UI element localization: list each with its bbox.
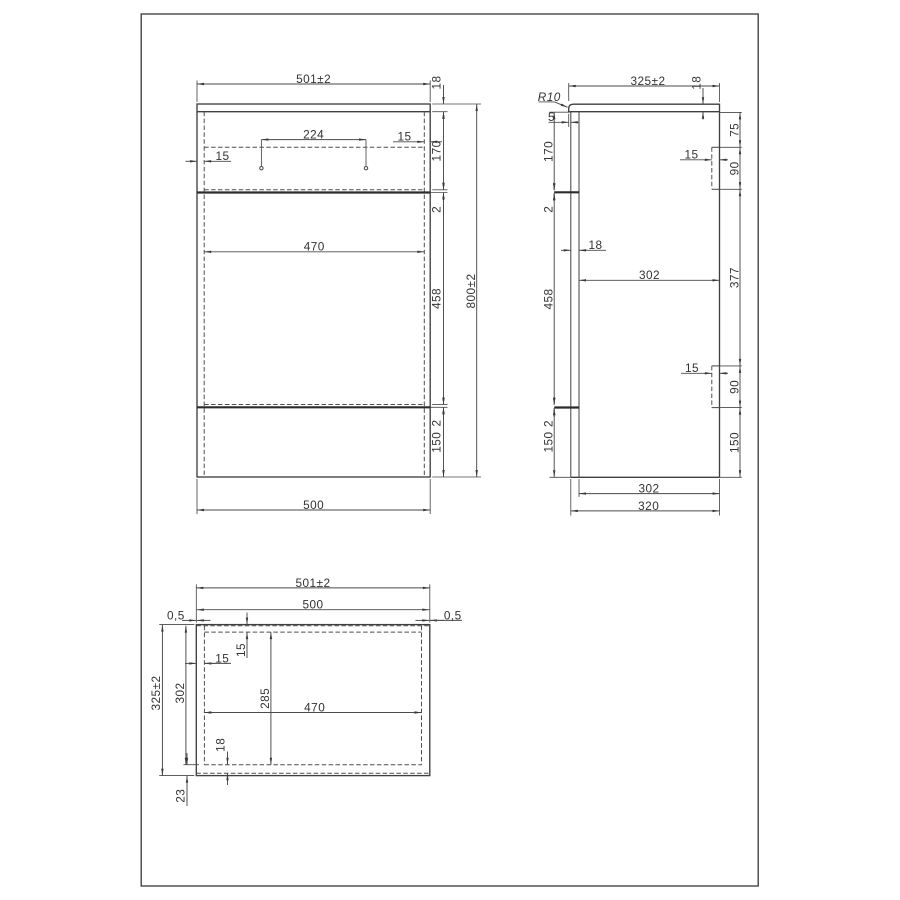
svg-text:18: 18 [430, 75, 444, 89]
svg-text:2: 2 [542, 420, 556, 427]
svg-text:15: 15 [684, 148, 698, 162]
svg-text:15: 15 [234, 643, 248, 657]
svg-text:18: 18 [588, 238, 602, 252]
svg-text:302: 302 [638, 482, 659, 496]
svg-text:2: 2 [542, 206, 556, 213]
svg-text:500: 500 [303, 498, 324, 512]
svg-text:150: 150 [430, 432, 444, 453]
svg-text:470: 470 [304, 240, 325, 254]
svg-text:302: 302 [173, 682, 187, 703]
svg-text:18: 18 [213, 738, 227, 752]
svg-text:75: 75 [727, 123, 741, 137]
svg-text:15: 15 [215, 651, 229, 665]
svg-text:377: 377 [727, 267, 741, 288]
svg-text:285: 285 [258, 688, 272, 709]
svg-text:2: 2 [430, 206, 444, 213]
svg-text:470: 470 [304, 700, 325, 714]
svg-text:800±2: 800±2 [464, 274, 478, 309]
svg-text:501±2: 501±2 [296, 576, 331, 590]
svg-text:15: 15 [397, 130, 411, 144]
svg-text:302: 302 [639, 268, 660, 282]
svg-text:15: 15 [215, 149, 229, 163]
svg-text:320: 320 [638, 499, 659, 513]
svg-text:458: 458 [430, 288, 444, 309]
svg-text:170: 170 [430, 140, 444, 161]
svg-text:458: 458 [542, 288, 556, 309]
svg-text:0,5: 0,5 [444, 608, 462, 622]
svg-text:500: 500 [302, 598, 323, 612]
svg-text:2: 2 [430, 419, 444, 426]
svg-text:325±2: 325±2 [631, 74, 666, 88]
svg-text:0,5: 0,5 [167, 608, 185, 622]
svg-text:150: 150 [727, 432, 741, 453]
svg-text:90: 90 [727, 161, 741, 175]
svg-text:23: 23 [173, 789, 187, 803]
svg-text:170: 170 [542, 141, 556, 162]
svg-text:15: 15 [685, 361, 699, 375]
svg-text:90: 90 [727, 380, 741, 394]
svg-text:501±2: 501±2 [296, 72, 331, 86]
svg-text:224: 224 [303, 128, 324, 142]
svg-text:18: 18 [690, 76, 704, 90]
svg-text:150: 150 [542, 431, 556, 452]
svg-text:325±2: 325±2 [149, 676, 163, 711]
